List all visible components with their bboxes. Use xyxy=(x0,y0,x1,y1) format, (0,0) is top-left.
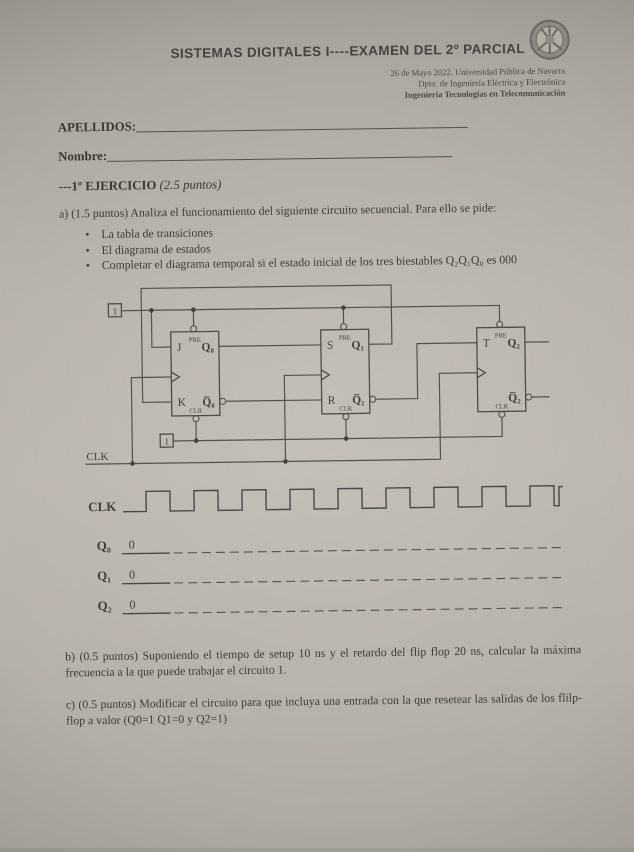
logic-one-source-top: 1 xyxy=(108,304,121,318)
clock-edge-triangle xyxy=(321,370,329,380)
timing-row-q0: Q₀ 0 xyxy=(97,532,564,555)
q1-blank-trace xyxy=(174,578,564,583)
r-input-label: R xyxy=(328,395,336,407)
jk-flipflop: PRE CLR J K Q₀ Q̅₀ xyxy=(171,325,226,422)
clr-label: CLR xyxy=(495,403,508,410)
timing-diagram: CLK Q₀ 0 Q₁ 0 Q₂ 0 xyxy=(61,479,595,622)
timing-row-q2: Q₂ 0 xyxy=(97,592,564,615)
exercise-heading-title: ---1º EJERCICIO xyxy=(59,178,157,193)
clr-label: CLR xyxy=(189,408,202,415)
clock-edge-triangle xyxy=(477,368,485,378)
bullet-icon: • xyxy=(85,227,101,243)
logic-one-label: 1 xyxy=(164,438,169,448)
q0-blank-trace xyxy=(174,548,564,553)
q2-output-label: Q₂ xyxy=(507,337,520,349)
pre-label: PRE xyxy=(339,335,351,342)
bullet-icon: • xyxy=(86,258,102,274)
q2-initial-value: 0 xyxy=(129,598,135,612)
q1-not-output-label: Q̅₁ xyxy=(352,393,365,406)
sr-flipflop: PRE CLR S R Q₁ Q̅₁ xyxy=(321,323,376,420)
apellidos-field: APELLIDOS: xyxy=(58,115,468,136)
timing-row-q1: Q₁ 0 xyxy=(97,562,564,585)
exercise-heading-points: (2.5 puntos) xyxy=(159,177,221,192)
part-c-text: c) (0.5 puntos) Modificar el circuito pa… xyxy=(66,690,582,728)
k-input-label: K xyxy=(178,397,187,409)
q0-row-label: Q₀ xyxy=(97,538,111,553)
pre-label: PRE xyxy=(189,337,201,344)
list-item-text: El diagrama de estados xyxy=(101,241,210,258)
clk-waveform xyxy=(123,486,563,512)
wire-junction-dots xyxy=(128,305,349,466)
sequential-circuit-diagram: 1 1 xyxy=(58,272,593,475)
q1-output-label: Q₁ xyxy=(351,339,364,351)
logic-one-source-bottom: 1 xyxy=(160,434,173,448)
part-b-text: b) (0.5 puntos) Suponiendo el tiempo de … xyxy=(65,642,581,680)
q2-not-output-label: Q̅₂ xyxy=(508,391,521,404)
q0-not-output-label: Q̅₀ xyxy=(202,395,215,408)
circuit-clk-label: CLK xyxy=(86,451,108,463)
q1-initial-value: 0 xyxy=(129,568,135,582)
list-item-text: La tabla de transiciones xyxy=(101,225,213,242)
logic-one-label: 1 xyxy=(112,307,117,317)
q0-output-label: Q₀ xyxy=(201,341,214,353)
bullet-icon: • xyxy=(85,243,101,259)
pre-label: PRE xyxy=(495,332,507,339)
exam-paper: SISTEMAS DIGITALES I----EXAMEN DEL 2º PA… xyxy=(0,0,634,852)
requirements-list: • La tabla de transiciones • El diagrama… xyxy=(85,220,578,274)
clock-edge-triangle xyxy=(171,372,179,382)
nombre-field: Nombre: xyxy=(58,144,452,164)
q1-row-label: Q₁ xyxy=(97,568,111,583)
t-flipflop: PRE CLR T Q₂ Q̅₂ xyxy=(477,321,532,418)
q2-blank-trace xyxy=(175,608,565,613)
exercise-heading: ---1º EJERCICIO (2.5 puntos) xyxy=(59,177,222,194)
apellidos-label: APELLIDOS: xyxy=(58,119,136,135)
part-a-text: a) (1.5 puntos) Analiza el funcionamient… xyxy=(59,199,575,222)
timing-clk-label: CLK xyxy=(88,499,117,514)
j-input-label: J xyxy=(177,342,182,354)
header-meta: 26 de Mayo 2022. Universidad Pública de … xyxy=(265,66,565,103)
t-input-label: T xyxy=(483,338,490,350)
s-input-label: S xyxy=(327,340,334,352)
apellidos-blank-line xyxy=(136,115,468,133)
nombre-blank-line xyxy=(107,144,452,162)
q0-initial-value: 0 xyxy=(129,538,135,552)
nombre-label: Nombre: xyxy=(58,149,107,165)
clr-label: CLR xyxy=(339,405,352,412)
q2-row-label: Q₂ xyxy=(97,598,111,613)
